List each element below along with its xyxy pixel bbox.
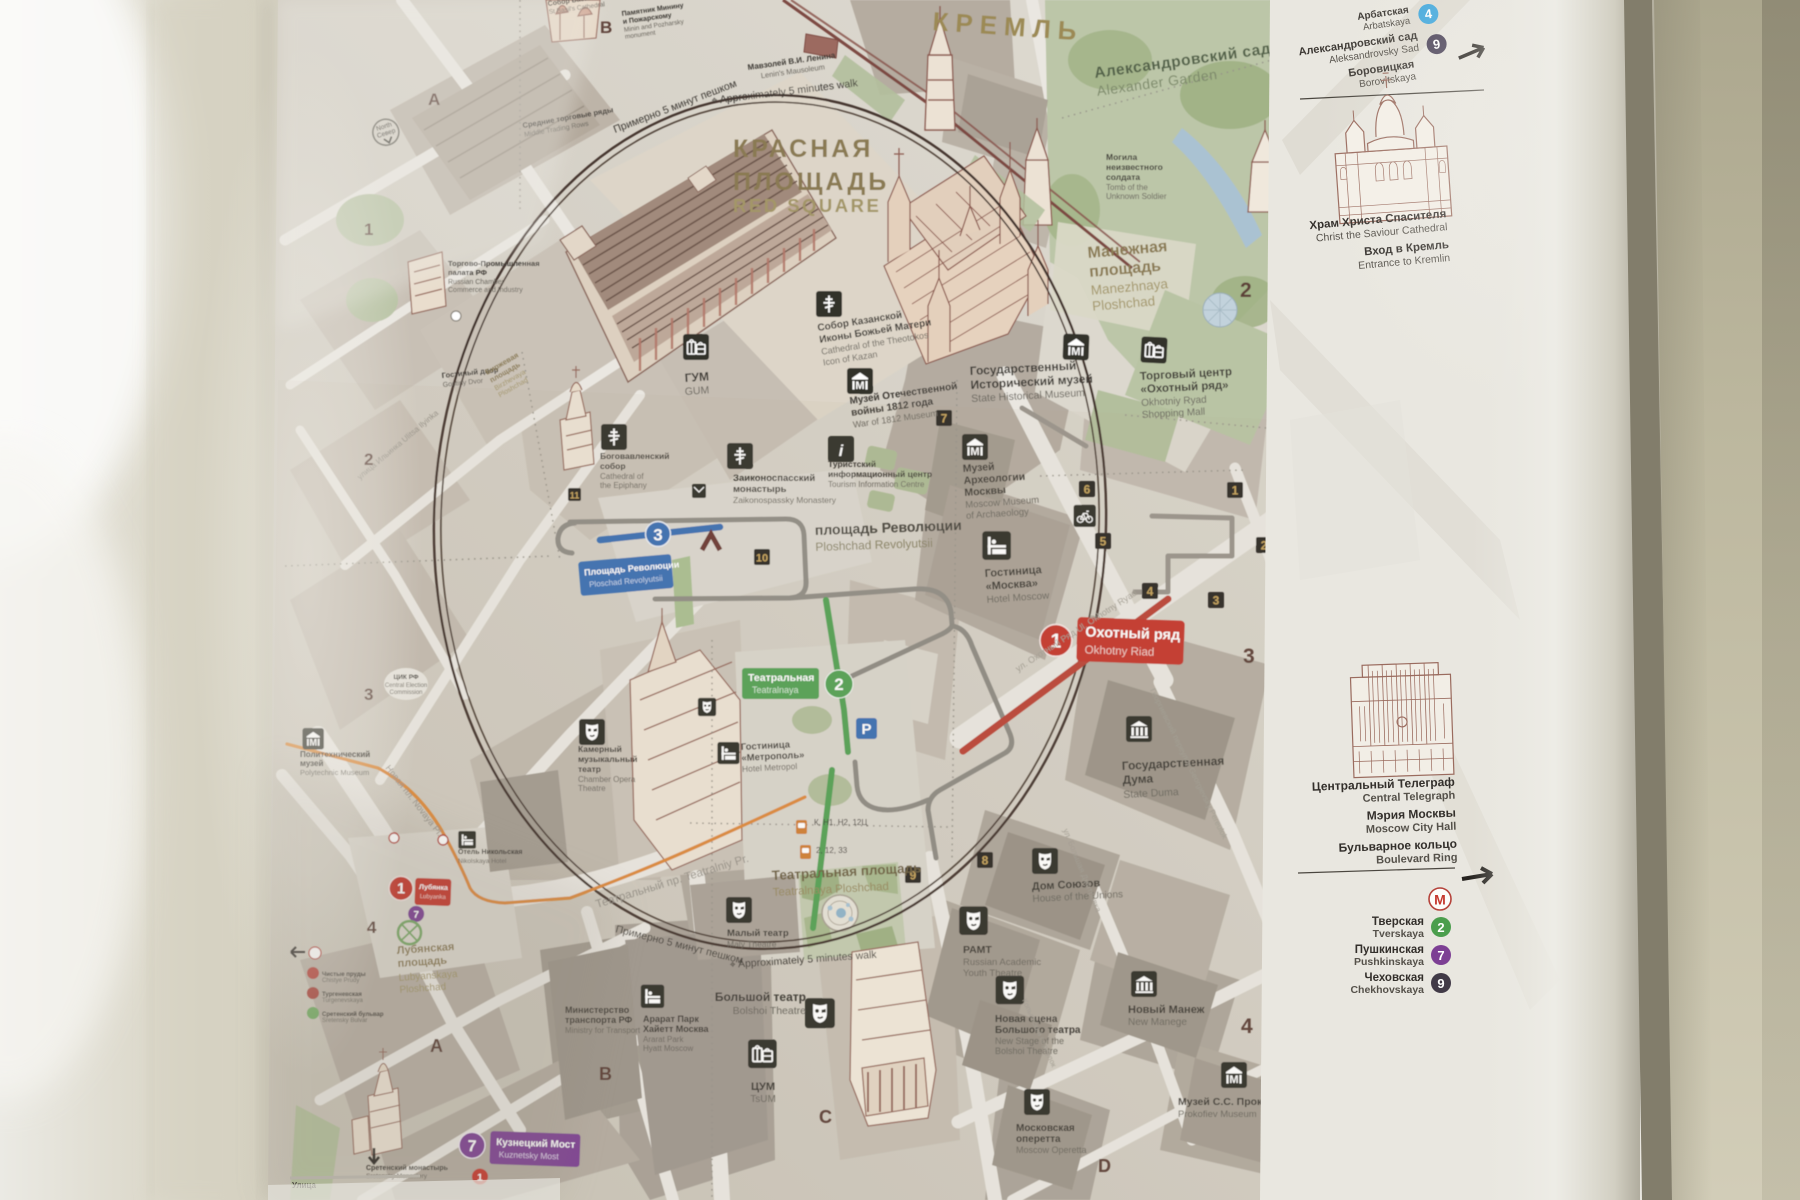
svg-text:Tomb of the: Tomb of the xyxy=(1106,183,1148,192)
svg-text:солдата: солдата xyxy=(1106,172,1140,182)
svg-text:Пушкинская: Пушкинская xyxy=(1355,944,1424,956)
svg-text:2: 2 xyxy=(1240,279,1252,302)
svg-text:ПЛОЩАДЬ: ПЛОЩАДЬ xyxy=(733,168,889,196)
svg-text:Russian Chamber: Russian Chamber xyxy=(448,279,505,286)
svg-text:7: 7 xyxy=(1437,948,1444,963)
svg-text:неизвестного: неизвестного xyxy=(1106,162,1163,172)
svg-text:GUM: GUM xyxy=(684,384,709,398)
svg-text:Могила: Могила xyxy=(1106,152,1137,162)
svg-text:RED SQUARE: RED SQUARE xyxy=(733,195,881,216)
svg-text:В: В xyxy=(600,18,612,37)
svg-text:9: 9 xyxy=(1437,976,1444,991)
svg-text:Pushkinskaya: Pushkinskaya xyxy=(1354,956,1424,968)
svg-text:Unknown Soldier: Unknown Soldier xyxy=(1106,192,1167,201)
svg-text:Commerce and Industry: Commerce and Industry xyxy=(448,287,523,294)
svg-text:ГУМ: ГУМ xyxy=(684,369,709,385)
svg-text:КРАСНАЯ: КРАСНАЯ xyxy=(733,135,873,163)
svg-text:2: 2 xyxy=(1437,920,1444,935)
svg-text:Tverskaya: Tverskaya xyxy=(1373,928,1425,940)
svg-text:Тверская: Тверская xyxy=(1372,916,1424,928)
svg-text:Chekhovskaya: Chekhovskaya xyxy=(1350,984,1424,996)
svg-text:Чеховская: Чеховская xyxy=(1365,972,1425,984)
svg-text:М: М xyxy=(1434,892,1446,908)
